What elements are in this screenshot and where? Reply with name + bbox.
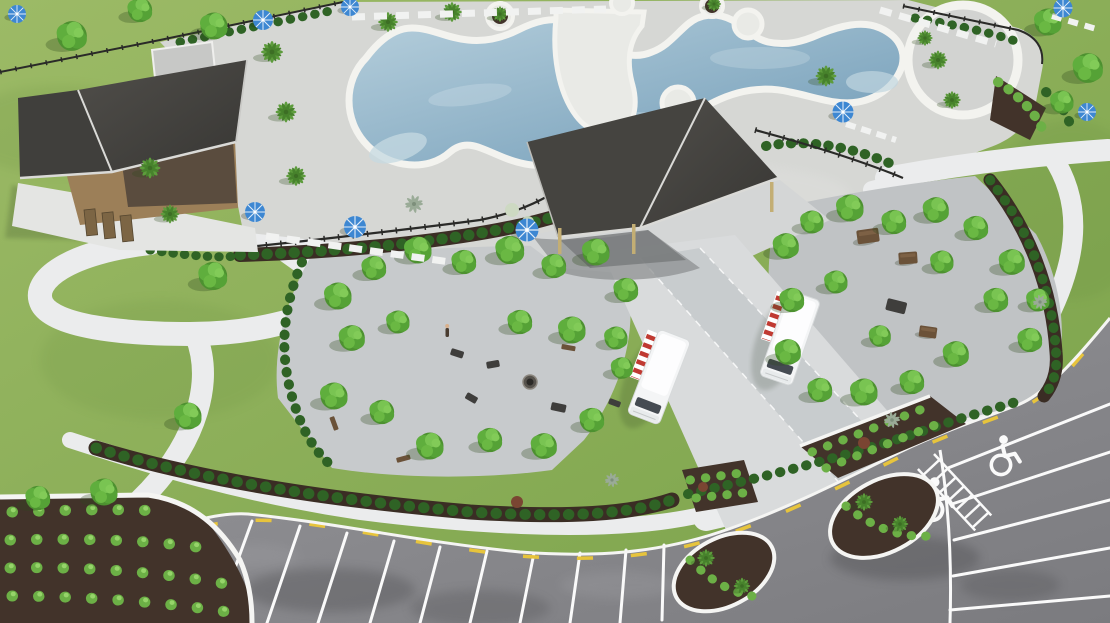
door — [120, 215, 134, 242]
door — [84, 209, 98, 236]
person — [445, 324, 449, 337]
aerial-rendering — [0, 0, 1110, 623]
left-grove-plaza — [277, 246, 631, 477]
red-shrub — [698, 482, 708, 492]
pavilion-post — [558, 228, 562, 254]
pavilion-post — [770, 182, 774, 212]
white-flowering-shrub — [505, 203, 519, 217]
shadow-patch — [960, 569, 1060, 601]
red-shrub — [511, 496, 523, 508]
parking-stripe — [662, 545, 664, 620]
round-planter — [611, 0, 633, 14]
fire-pit-bowl — [527, 379, 534, 386]
pool-shallow-shelf — [846, 71, 898, 93]
red-shrub — [858, 437, 870, 449]
rendering-stage — [0, 0, 1110, 623]
door — [102, 212, 116, 239]
pavilion-post — [632, 224, 636, 254]
water-ripple — [710, 47, 810, 69]
deck-bump — [734, 10, 762, 38]
